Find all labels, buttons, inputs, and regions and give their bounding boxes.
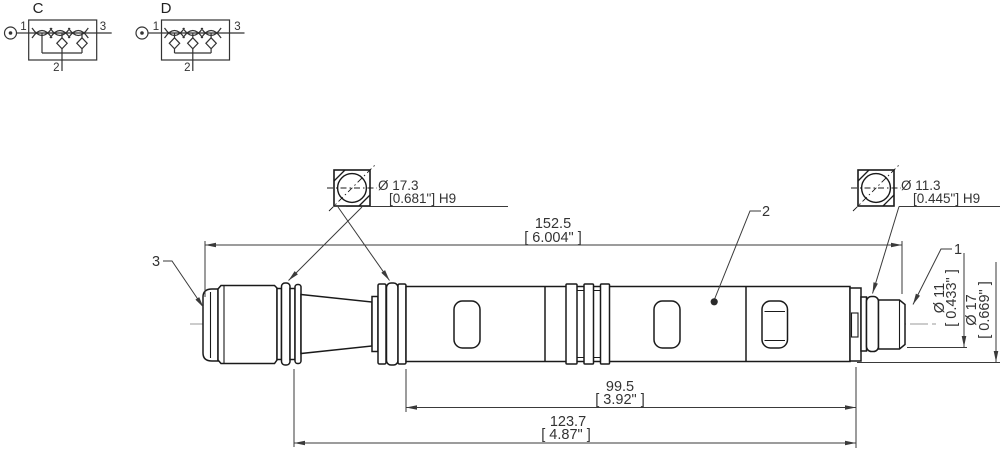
mid-ring	[601, 284, 610, 364]
tube-slot	[454, 301, 480, 348]
dimension-value-inch: [ 4.87" ]	[541, 427, 590, 443]
schematic-c-title: C	[33, 0, 44, 17]
tip-stub	[861, 297, 867, 351]
pin-3-label: 3	[234, 21, 240, 33]
tip-groove-ring	[867, 297, 879, 352]
item-number: 2	[762, 204, 770, 220]
clamp-section-icon	[851, 165, 901, 211]
part-outline	[203, 283, 905, 365]
pin-2-label: 2	[53, 62, 59, 74]
schematic-d-title: D	[161, 0, 172, 17]
pin-1-label: 1	[20, 21, 26, 33]
item-label-3-connector: 3	[152, 254, 204, 308]
taper-cone	[301, 295, 372, 354]
clamp-ring	[282, 283, 291, 365]
technical-drawing-sheet: C 1 3 2 D 1 3 2	[0, 0, 1000, 450]
clamp-ring	[378, 284, 386, 364]
clamp-ring	[387, 283, 399, 365]
terminal-dot-icon	[140, 31, 144, 35]
leader-dot	[711, 298, 718, 305]
clamp-ring	[295, 285, 301, 364]
schematic-c: C 1 3 2	[5, 0, 112, 74]
dimension-overall-length: 152.5 [ 6.004" ]	[205, 216, 902, 297]
drawing-svg: C 1 3 2 D 1 3 2	[0, 0, 1000, 450]
callout-leader-arrow	[289, 207, 363, 281]
dimension-probe-length: 99.5 [ 3.92" ]	[406, 367, 856, 448]
bore-tolerance-value: [0.445"] H9	[913, 191, 980, 206]
tap-diamond-icon	[169, 38, 216, 49]
item-number: 3	[152, 254, 160, 270]
pin-3-label: 3	[100, 21, 106, 33]
tube-slot	[654, 301, 680, 348]
pin-2-label: 2	[184, 62, 190, 74]
probe-tip	[879, 300, 906, 349]
terminal-dot-icon	[9, 31, 13, 35]
ring-band	[372, 297, 378, 352]
dimension-value-inch: [ 3.92" ]	[595, 392, 644, 408]
end-key-tab	[852, 313, 859, 337]
connector-barrel	[218, 286, 277, 364]
mid-ring	[566, 284, 577, 364]
callout-clamp-bore-left: Ø 17.3 [0.681"] H9	[289, 165, 509, 281]
dimension-value-inch: [ 0.669" ]	[977, 281, 993, 339]
pin-1-label: 1	[153, 21, 159, 33]
leader-arrow	[163, 261, 204, 308]
dimension-tip-diameter: Ø 11 [ 0.433" ]	[907, 253, 967, 348]
clamp-ring	[398, 284, 406, 364]
bore-tolerance-value: [0.681"] H9	[389, 191, 456, 206]
callout-clamp-bore-right: Ø 11.3 [0.445"] H9	[851, 165, 1000, 294]
clamp-section-icon	[327, 165, 377, 211]
callout-leader-arrow	[338, 207, 390, 281]
mid-ring	[584, 284, 594, 364]
dimension-value-inch: [ 6.004" ]	[524, 230, 582, 246]
tap-diamond-icon	[57, 38, 87, 49]
dimension-value-inch: [ 0.433" ]	[944, 269, 960, 327]
callout-leader-arrow	[873, 207, 900, 294]
item-number: 1	[954, 242, 962, 258]
schematic-d: D 1 3 2	[136, 0, 245, 74]
